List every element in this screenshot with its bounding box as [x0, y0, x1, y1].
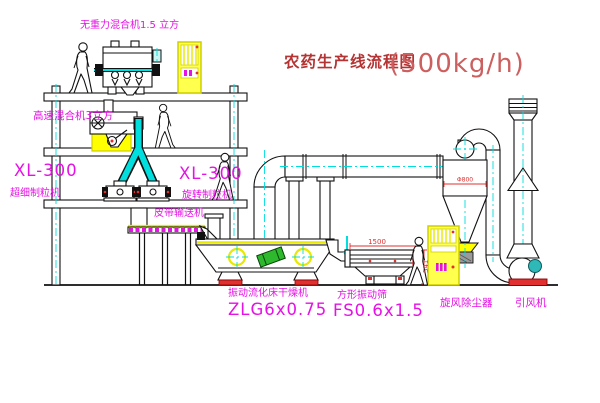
induced-draft-fan [507, 244, 547, 286]
label-granulator-right-name: 旋转制粒机 [182, 188, 232, 201]
control-cabinet-top [178, 42, 201, 93]
label-screen-name: 方形振动筛 [337, 288, 387, 301]
label-granulator-left-model: XL-300 [14, 161, 78, 180]
label-dryer-model: ZLG6x0.75 [228, 300, 327, 319]
dim-screen-height: 541 [422, 260, 430, 273]
gravity-free-mixer [94, 41, 161, 95]
dim-cyclone-dia: Φ800 [457, 177, 473, 184]
label-gravity-mixer: 无重力混合机1.5 立方 [80, 18, 179, 31]
control-cabinet-ground [428, 226, 459, 285]
label-granulator-right-model: XL-300 [179, 164, 243, 183]
granulator-right-machine [135, 181, 171, 201]
label-granulator-left-name: 超细制粒机 [10, 186, 60, 199]
exhaust-duct [205, 150, 462, 244]
label-screen-model: FS0.6x1.5 [333, 301, 424, 320]
label-belt-conveyor: 皮带输送机 [154, 206, 204, 219]
diagram-title-capacity: (500kg/h) [389, 49, 525, 79]
label-fan: 引风机 [515, 296, 547, 309]
dim-screen-length: 1500 [368, 238, 386, 246]
label-high-speed-mixer: 高速混合机3立方 [33, 109, 113, 122]
fluid-bed-dryer [196, 232, 352, 285]
diagram-canvas: 无重力混合机1.5 立方 高速混合机3立方 XL-300 超细制粒机 XL-30… [0, 0, 600, 403]
label-cyclone: 旋风除尘器 [440, 296, 493, 309]
person-figure-top-floor [69, 43, 92, 93]
granulator-left-machine [102, 181, 138, 201]
process-flow-diagram: 无重力混合机1.5 立方 高速混合机3立方 XL-300 超细制粒机 XL-30… [0, 0, 600, 403]
label-dryer-name: 振动流化床干燥机 [228, 286, 308, 299]
person-figure-second-floor [155, 104, 175, 148]
